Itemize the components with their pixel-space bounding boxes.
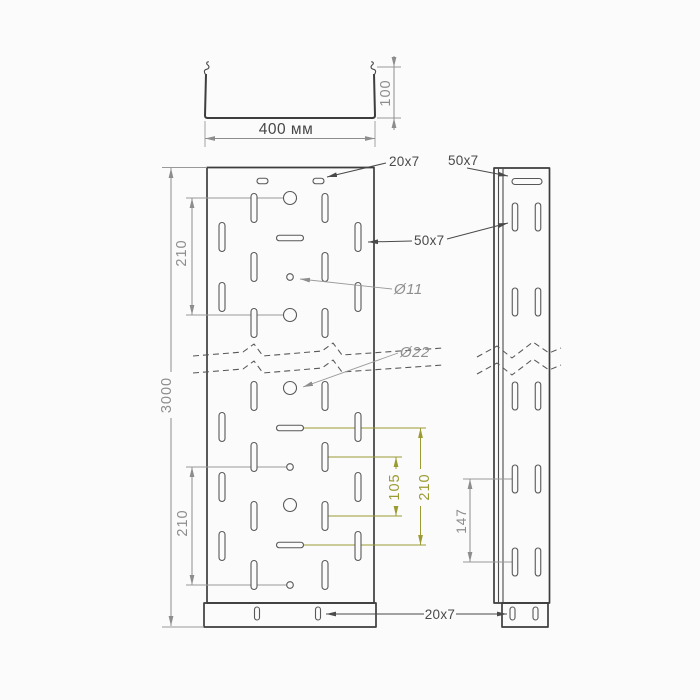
side-view (463, 168, 561, 627)
label-small-hole: Ø11 (393, 281, 423, 298)
perforation-slot (251, 253, 257, 282)
perforation-slot (219, 473, 225, 502)
flange-slot-20x7 (255, 607, 260, 620)
perforation-slot (251, 443, 257, 472)
perforation-slot (251, 382, 257, 411)
dim-section-height: 100 (378, 79, 394, 106)
flange-slot-20x7 (533, 607, 538, 620)
perforation-slot (251, 561, 257, 590)
flange-slot-20x7 (510, 607, 515, 620)
perforation-slot (322, 194, 328, 223)
perforation-slot (219, 532, 225, 561)
channel-profile (205, 74, 375, 118)
break-line (193, 360, 443, 373)
hole-11mm (287, 274, 294, 281)
perforation-slot (219, 413, 225, 442)
perforation-slot (355, 223, 361, 252)
hole-11mm (287, 464, 294, 471)
perforation-slot (251, 309, 257, 338)
perforation-slot (251, 502, 257, 531)
dim-pitch-upper: 210 (174, 239, 190, 266)
perforation-slot-horizontal (277, 235, 304, 241)
hole-22mm (284, 499, 297, 512)
perforation-slot (535, 203, 541, 231)
perforation-slot (535, 548, 541, 576)
leader-line (303, 353, 398, 387)
perforation-slot (535, 288, 541, 316)
dim-section-width: 400 мм (259, 121, 313, 138)
leader-line (327, 163, 386, 177)
perforation-slot-20x7 (313, 178, 324, 184)
perforation-slot (512, 288, 518, 316)
perforation-slot (219, 283, 225, 312)
perforation-slot (322, 382, 328, 411)
label-large-hole: Ø22 (399, 344, 430, 361)
perforation-slot (535, 382, 541, 410)
perforation-slot-horizontal (277, 425, 304, 431)
dim-slot-pitch: 105 (387, 473, 403, 500)
perforation-slot (535, 465, 541, 493)
cross-section-view: 400 мм 100 (204, 56, 401, 147)
drawing-canvas: 400 мм 100 (0, 0, 700, 700)
channel-right-curl-icon (371, 62, 376, 75)
flange-slot-20x7 (316, 607, 321, 620)
perforation-slot (322, 253, 328, 282)
hole-22mm (284, 309, 297, 322)
perforation-slot (322, 443, 328, 472)
side-flange-outline (502, 603, 548, 627)
perforation-slot (512, 203, 518, 231)
leader-line (300, 279, 392, 289)
perforation-slot (322, 502, 328, 531)
front-flange-outline (204, 603, 376, 627)
perforation-slot-20x7 (257, 178, 268, 184)
perforation-slot (512, 548, 518, 576)
leader-line (467, 168, 508, 176)
break-line (477, 342, 561, 358)
break-line (477, 359, 561, 375)
perforation-slot (355, 283, 361, 312)
dim-slot-group-pitch: 210 (417, 473, 433, 500)
label-flange-slot: 20x7 (425, 607, 455, 622)
perforation-slot (322, 309, 328, 338)
perforation-slot-50x7 (512, 179, 542, 185)
dim-pitch-lower: 210 (175, 509, 191, 536)
perforation-slot (355, 532, 361, 561)
perforation-slot (322, 561, 328, 590)
perforation-slot (219, 223, 225, 252)
label-side-top-slot: 50x7 (448, 153, 478, 168)
perforation-slot (512, 382, 518, 410)
front-view (162, 168, 443, 628)
labels: 20x7 50x7 50x7 Ø11 Ø22 20x7 (300, 153, 508, 622)
label-wall-slot: 50x7 (414, 233, 444, 248)
dim-side-pitch: 147 (454, 508, 469, 534)
label-top-slot: 20x7 (389, 154, 419, 169)
hole-11mm (287, 582, 294, 589)
dim-total-length: 3000 (159, 377, 175, 413)
perforation-slot (512, 465, 518, 493)
front-perforations (219, 178, 361, 620)
perforation-slot (251, 194, 257, 223)
channel-left-curl-icon (204, 62, 209, 75)
side-perforations (510, 179, 542, 621)
perforation-slot (355, 413, 361, 442)
hole-22mm (284, 382, 297, 395)
perforation-slot-horizontal (277, 542, 304, 548)
hole-22mm (284, 192, 297, 205)
perforation-slot (355, 473, 361, 502)
